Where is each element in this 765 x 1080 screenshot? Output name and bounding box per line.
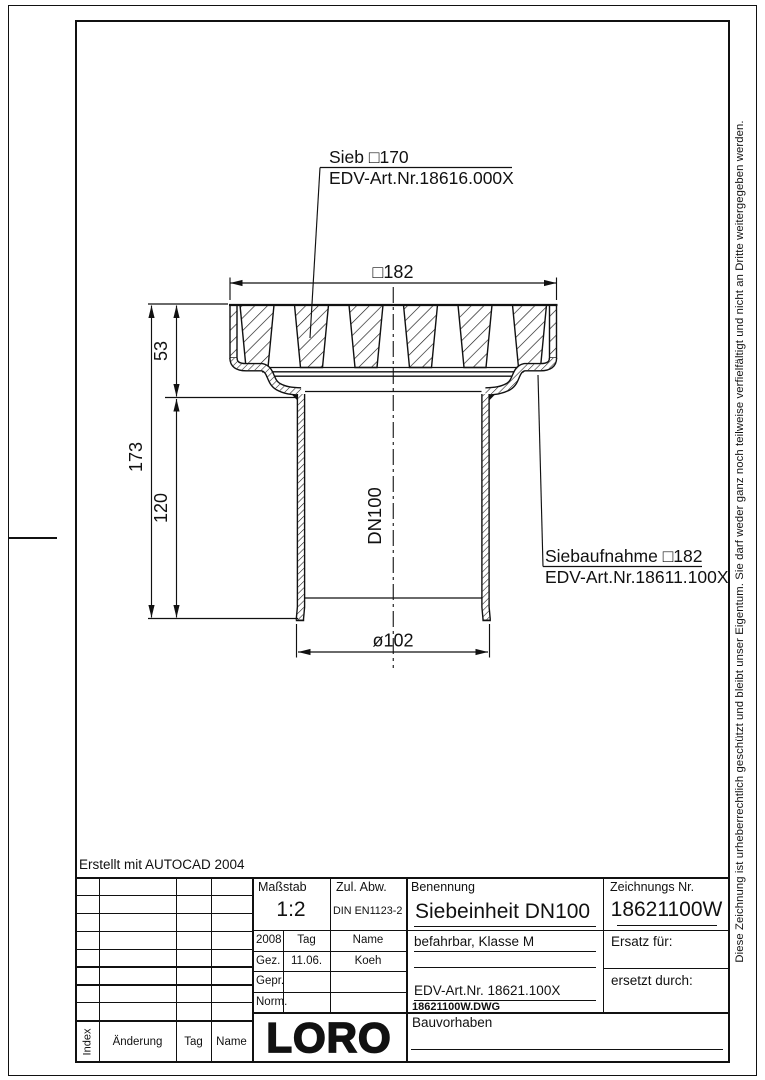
dwg-value: 18621100W.DWG <box>412 1002 500 1014</box>
ersatz-label: Ersatz für: <box>611 935 673 949</box>
name-label: Name <box>211 1036 252 1048</box>
massstab-value: 1:2 <box>252 899 330 921</box>
zeichnungs-value: 18621100W <box>603 899 730 921</box>
loro-logo: LORO <box>254 1013 405 1062</box>
gez-tag-value: 11.06. <box>283 955 330 967</box>
dim-total-height-text: 173 <box>126 442 146 472</box>
dim-sieve-height-text: 53 <box>151 341 171 361</box>
callout-siebaufnahme-title: Siebaufnahme □182 <box>545 546 703 566</box>
zul-abw-label: Zul. Abw. <box>336 881 387 894</box>
bauvorhaben-label: Bauvorhaben <box>412 1016 492 1030</box>
zul-abw-value: DIN EN1123-2 <box>333 906 402 917</box>
benennung-value: Siebeinheit DN100 <box>415 901 590 923</box>
index-label: Index <box>82 1029 94 1056</box>
zeichnungs-label: Zeichnungs Nr. <box>610 881 694 894</box>
class-note: befahrbar, Klasse M <box>414 935 534 949</box>
callout-siebaufnahme-edv: EDV-Art.Nr.18611.100X <box>545 567 729 587</box>
callout-sieb-edv: EDV-Art.Nr.18616.000X <box>329 168 514 188</box>
dim-pipe-diameter-text: ø102 <box>372 631 413 651</box>
callout-sieb-title: Sieb □170 <box>329 147 409 167</box>
norm-label: Norm. <box>256 996 287 1008</box>
year-value: 2008 <box>256 934 282 946</box>
edv-value: EDV-Art.Nr. 18621.100X <box>414 984 560 998</box>
pipe-dn-label: DN100 <box>364 487 385 545</box>
tag-label: Tag <box>176 1036 211 1048</box>
callout-siebaufnahme: Siebaufnahme □182 EDV-Art.Nr.18611.100X <box>538 375 729 587</box>
benennung-label: Benennung <box>411 881 475 894</box>
dim-top-width-text: □182 <box>373 262 414 282</box>
col-name-label: Name <box>330 934 406 946</box>
gez-label: Gez. <box>256 955 280 967</box>
index-label-cell: Index <box>76 1021 99 1063</box>
gepr-label: Gepr. <box>256 975 284 987</box>
dim-pipe-height-text: 120 <box>151 493 171 523</box>
ersetzt-label: ersetzt durch: <box>611 974 693 988</box>
loro-logo-text: LORO <box>266 1014 391 1061</box>
col-tag-label: Tag <box>283 934 330 946</box>
aenderung-label: Änderung <box>99 1036 176 1048</box>
massstab-label: Maßstab <box>258 881 307 894</box>
gez-name-value: Koeh <box>330 955 406 967</box>
